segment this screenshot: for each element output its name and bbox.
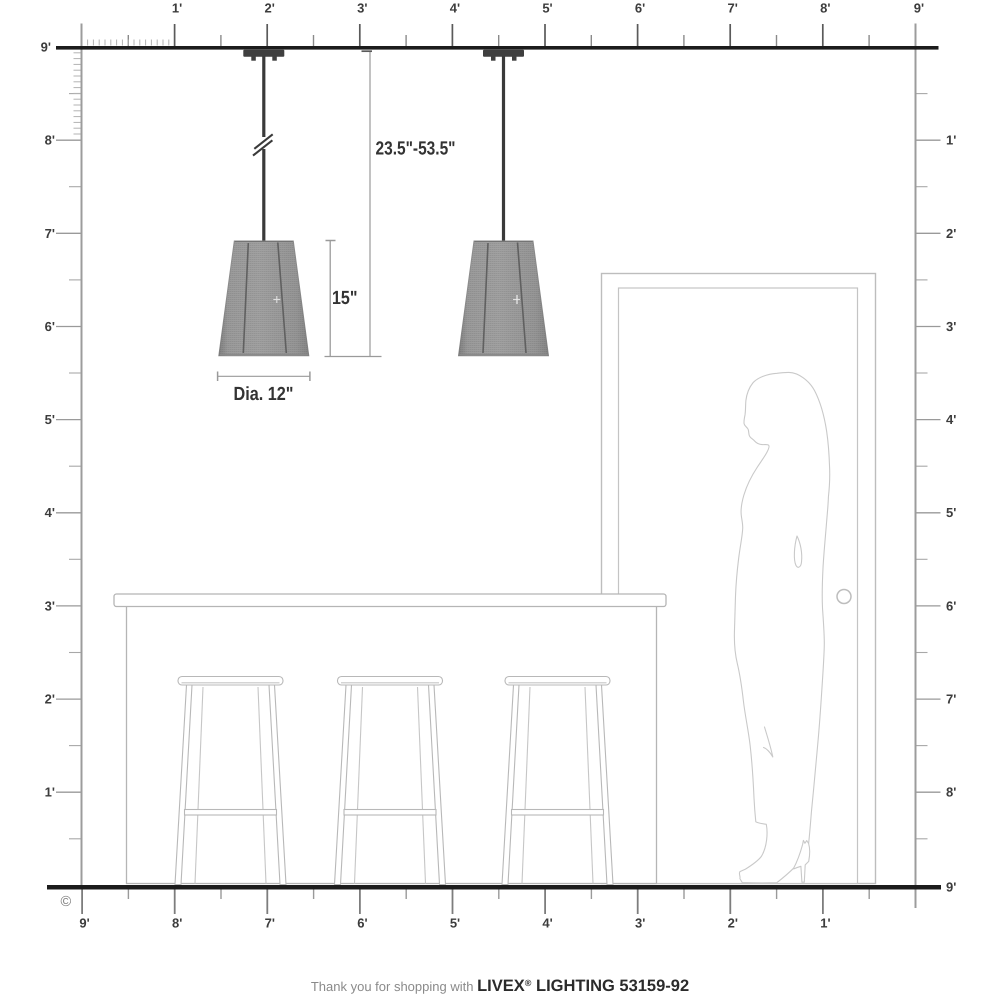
svg-text:3': 3'	[946, 319, 956, 334]
svg-text:4': 4'	[450, 1, 460, 16]
svg-text:15": 15"	[332, 288, 358, 309]
svg-text:Dia. 12": Dia. 12"	[234, 384, 294, 405]
svg-text:5': 5'	[946, 505, 956, 520]
svg-text:5': 5'	[450, 916, 460, 931]
svg-text:6': 6'	[357, 916, 367, 931]
svg-text:8': 8'	[45, 133, 55, 148]
svg-text:4': 4'	[542, 916, 552, 931]
svg-text:6': 6'	[635, 1, 645, 16]
svg-text:5': 5'	[542, 1, 552, 16]
svg-text:1': 1'	[45, 785, 55, 800]
svg-text:9': 9'	[41, 40, 51, 55]
svg-text:Thank you for shopping with LI: Thank you for shopping with LIVEX® LIGHT…	[311, 977, 689, 995]
svg-text:1': 1'	[820, 916, 830, 931]
svg-text:7': 7'	[946, 692, 956, 707]
svg-text:3': 3'	[357, 1, 367, 16]
svg-text:4': 4'	[45, 505, 55, 520]
svg-text:9': 9'	[914, 1, 924, 16]
svg-text:6': 6'	[45, 319, 55, 334]
svg-text:2': 2'	[946, 226, 956, 241]
svg-text:1': 1'	[172, 1, 182, 16]
svg-text:2': 2'	[45, 692, 55, 707]
svg-text:4': 4'	[946, 412, 956, 427]
svg-text:1': 1'	[946, 133, 956, 148]
svg-text:2': 2'	[728, 916, 738, 931]
svg-text:6': 6'	[946, 598, 956, 613]
svg-text:3': 3'	[635, 916, 645, 931]
svg-text:7': 7'	[265, 916, 275, 931]
svg-text:8': 8'	[946, 785, 956, 800]
svg-text:9': 9'	[946, 880, 956, 895]
svg-text:5': 5'	[45, 412, 55, 427]
svg-text:9': 9'	[79, 916, 89, 931]
svg-text:2': 2'	[265, 1, 275, 16]
svg-text:3': 3'	[45, 598, 55, 613]
svg-text:23.5"-53.5": 23.5"-53.5"	[376, 139, 456, 160]
svg-text:8': 8'	[820, 1, 830, 16]
svg-text:8': 8'	[172, 916, 182, 931]
svg-text:7': 7'	[728, 1, 738, 16]
svg-text:7': 7'	[45, 226, 55, 241]
svg-text:©: ©	[61, 894, 72, 910]
